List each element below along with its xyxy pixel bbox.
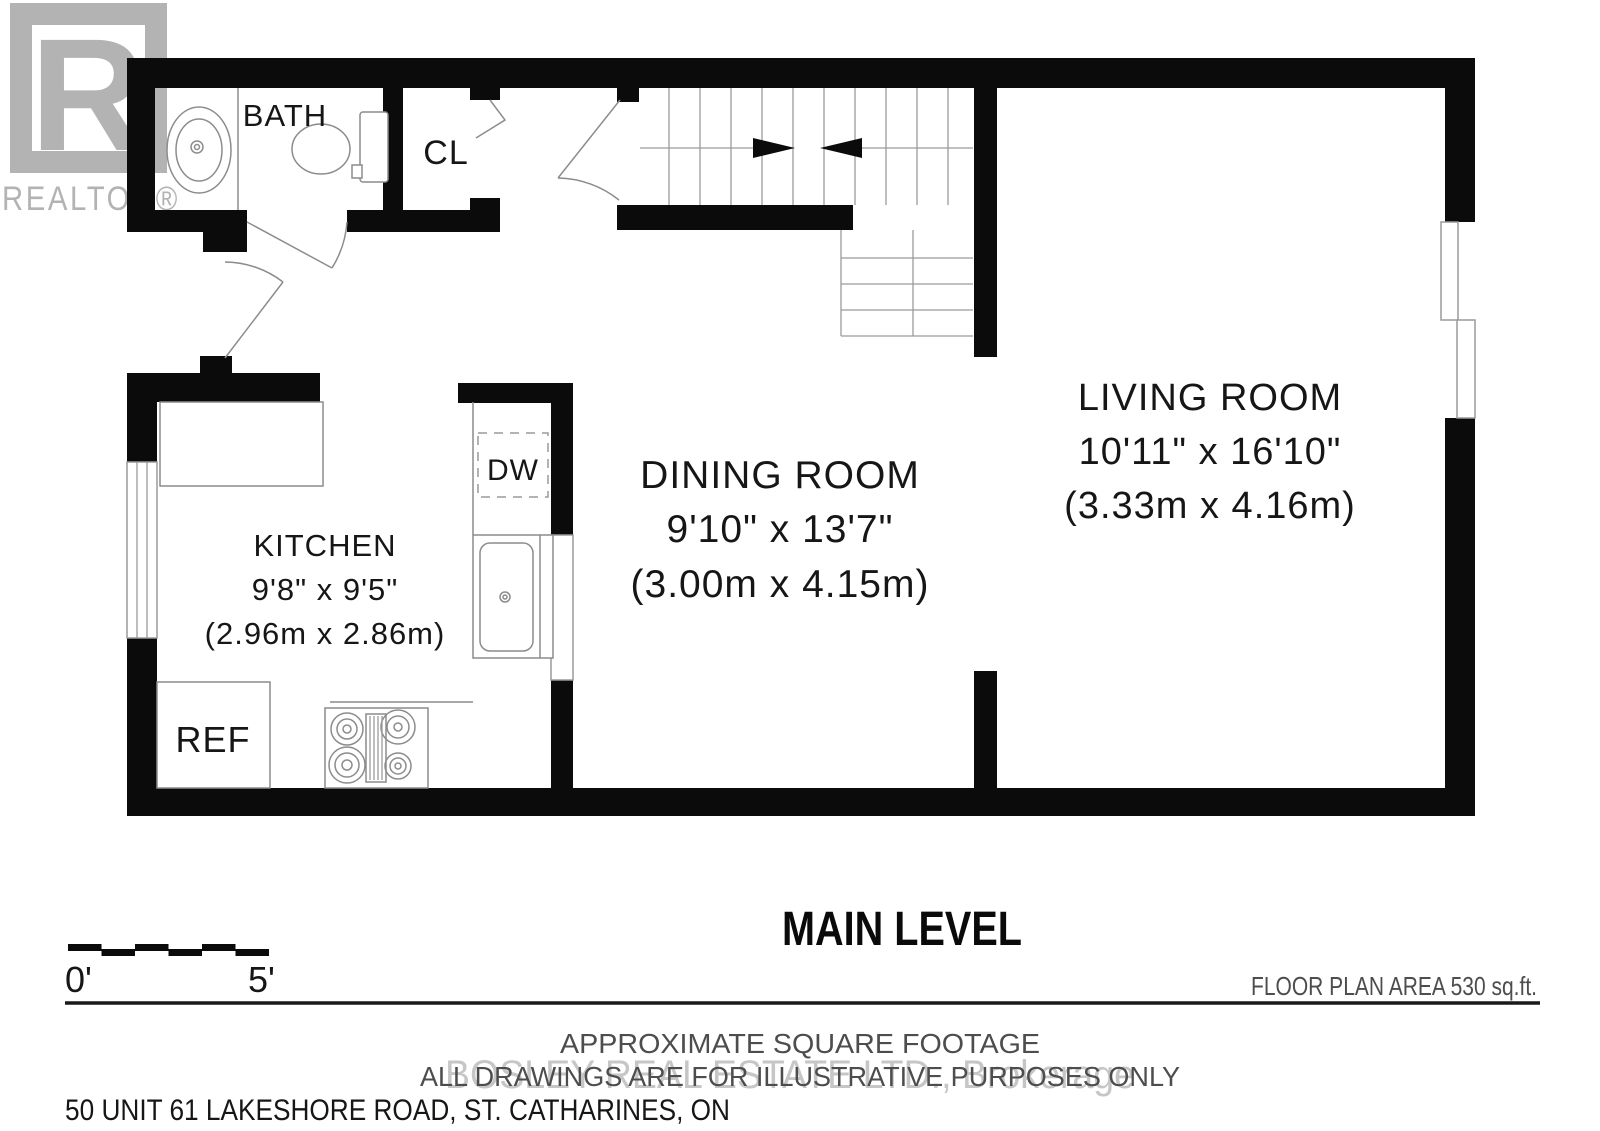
dining-name: DINING ROOM bbox=[640, 454, 920, 497]
scale-bar-segment bbox=[102, 950, 136, 956]
scale-bar-segment bbox=[236, 950, 270, 956]
scale-bar-segment bbox=[202, 944, 236, 950]
wall-dining-living-divider bbox=[974, 671, 997, 788]
living-window-upper bbox=[1441, 222, 1458, 320]
wall-right-lower bbox=[1445, 418, 1475, 788]
wall-kitchen-top-right bbox=[458, 383, 573, 403]
wall-stair-bottom bbox=[617, 205, 853, 230]
stair-arrow-left-icon bbox=[820, 138, 862, 158]
wall-kitchen-divider-lower bbox=[551, 680, 573, 788]
wall-top bbox=[127, 58, 1475, 88]
wall-cl-bottom bbox=[405, 210, 500, 232]
hall-door-leaf bbox=[225, 282, 283, 358]
kitchen-name: KITCHEN bbox=[253, 528, 396, 563]
approx-footage-line2: ALL DRAWINGS ARE FOR ILLUSTRATIVE PURPOS… bbox=[420, 1061, 1180, 1092]
kitchen-dims-metric: (2.96m x 2.86m) bbox=[205, 616, 446, 651]
approx-footage-line1: APPROXIMATE SQUARE FOOTAGE bbox=[560, 1028, 1040, 1059]
wall-cl-right-lower-stub bbox=[470, 198, 500, 212]
floor-area-note: FLOOR PLAN AREA 530 sq.ft. bbox=[1251, 971, 1537, 1001]
entry-door-leaf bbox=[558, 100, 620, 178]
floor-plan-page: R REALTOR® bbox=[0, 0, 1600, 1131]
wall-bath-bottom-stub bbox=[203, 232, 247, 252]
wall-kitchen-divider-upper bbox=[551, 403, 573, 535]
dining-dims-metric: (3.00m x 4.15m) bbox=[631, 563, 930, 606]
living-dims-imperial: 10'11" x 16'10" bbox=[1079, 431, 1342, 473]
dining-dims-imperial: 9'10" x 13'7" bbox=[667, 508, 894, 551]
scale-bar-segment bbox=[68, 944, 102, 950]
kitchen-counter-top bbox=[160, 402, 323, 486]
living-name: LIVING ROOM bbox=[1078, 377, 1342, 419]
hall-door-arc bbox=[225, 262, 283, 282]
entry-door-arc bbox=[558, 178, 619, 200]
scale-bar: 0' 5' bbox=[65, 944, 275, 1000]
wall-bottom bbox=[127, 788, 1475, 816]
wall-kitchen-top-stub bbox=[200, 356, 232, 373]
floor-plan-canvas: R REALTOR® bbox=[0, 0, 1600, 1131]
wall-kitchen-left-upper bbox=[127, 387, 157, 462]
kitchen-pass-through bbox=[551, 535, 573, 680]
level-title: MAIN LEVEL bbox=[782, 903, 1022, 956]
dishwasher-label: DW bbox=[487, 454, 539, 487]
room-labels: BATH CL DW REF KITCHEN 9'8" x 9'5" (2.96… bbox=[176, 98, 1356, 760]
bath-door-leaf bbox=[247, 222, 332, 268]
property-address: 50 UNIT 61 LAKESHORE ROAD, ST. CATHARINE… bbox=[65, 1094, 730, 1127]
wall-right-upper bbox=[1445, 88, 1475, 222]
wall-bath-left bbox=[127, 88, 155, 212]
footer: MAIN LEVEL 0' 5' FLOOR PLAN AREA 530 sq.… bbox=[65, 903, 1540, 1127]
wall-stair-living-divider bbox=[974, 88, 997, 357]
closet-bifold-door bbox=[476, 100, 505, 138]
wall-bath-bottom bbox=[127, 210, 247, 232]
bath-door-arc bbox=[332, 222, 347, 268]
living-window-lower bbox=[1457, 320, 1475, 418]
wall-bath-bottom-right bbox=[347, 210, 405, 232]
scale-five-label: 5' bbox=[248, 959, 275, 1000]
stair-arrow-right-icon bbox=[753, 138, 795, 158]
wall-entry-hinge-stub bbox=[617, 88, 639, 102]
kitchen-dims-imperial: 9'8" x 9'5" bbox=[252, 572, 399, 607]
wall-kitchen-left-lower bbox=[127, 638, 157, 788]
toilet-handle bbox=[352, 165, 362, 178]
scale-zero-label: 0' bbox=[65, 959, 92, 1000]
refrigerator-label: REF bbox=[176, 719, 251, 760]
scale-bar-segment bbox=[169, 950, 203, 956]
toilet-tank-icon bbox=[360, 112, 388, 182]
scale-bar-segment bbox=[135, 944, 169, 950]
kitchen-window bbox=[127, 462, 157, 638]
closet-label: CL bbox=[423, 134, 468, 172]
bath-label: BATH bbox=[243, 98, 327, 133]
living-dims-metric: (3.33m x 4.16m) bbox=[1064, 485, 1356, 527]
wall-cl-right-upper-stub bbox=[470, 88, 500, 100]
